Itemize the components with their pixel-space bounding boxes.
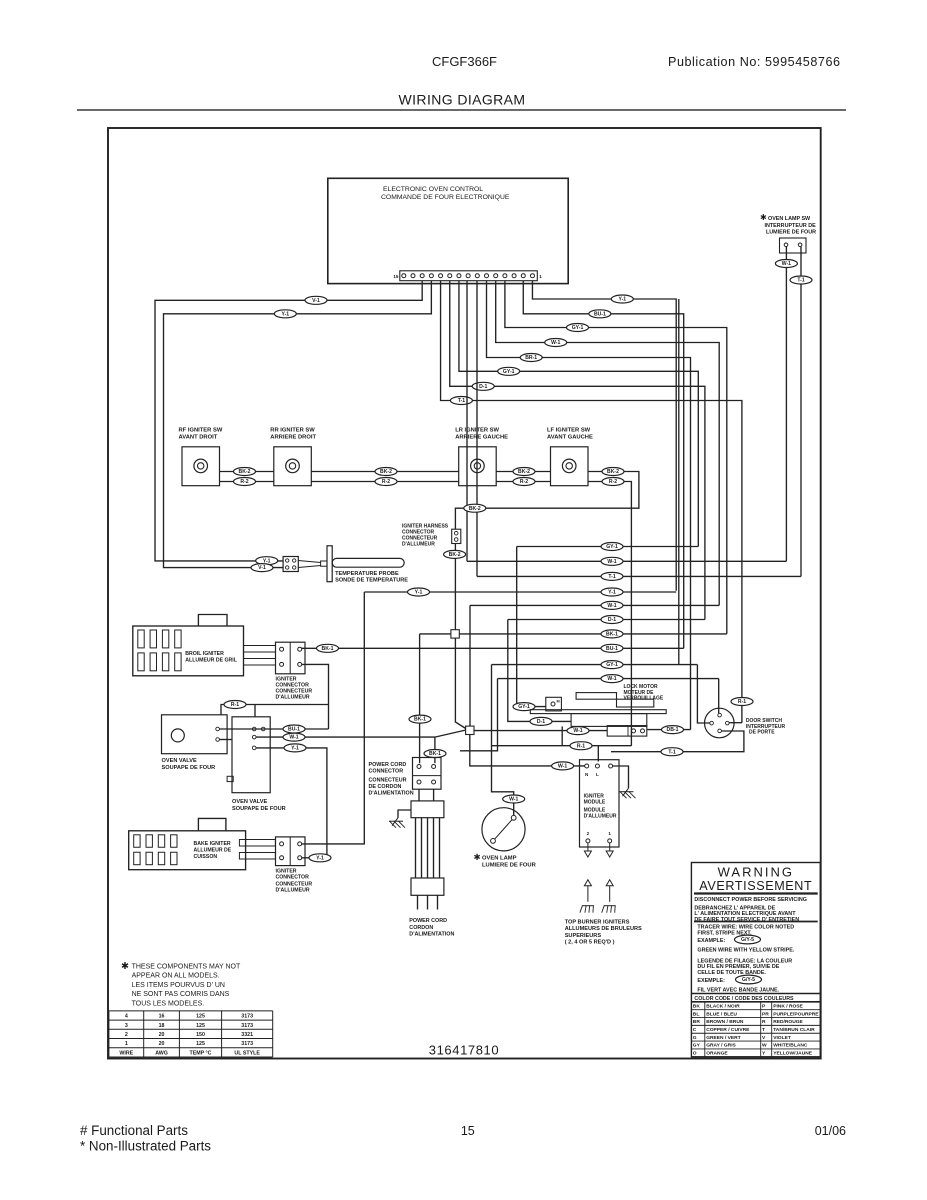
svg-text:18: 18	[159, 1023, 165, 1029]
svg-text:T: T	[762, 1027, 765, 1033]
svg-text:G/Y-5: G/Y-5	[742, 977, 755, 983]
svg-text:INTERRUPTEUR DE: INTERRUPTEUR DE	[765, 223, 817, 229]
svg-text:BU-1: BU-1	[606, 646, 618, 652]
svg-text:LUMIERE DE FOUR: LUMIERE DE FOUR	[482, 863, 537, 869]
svg-text:WARNING: WARNING	[718, 865, 794, 880]
svg-text:ORANGE: ORANGE	[706, 1051, 728, 1057]
svg-text:W-1: W-1	[782, 261, 791, 267]
svg-text:R-2: R-2	[382, 479, 390, 485]
svg-text:AWG: AWG	[155, 1050, 168, 1056]
svg-text:3173: 3173	[241, 1014, 253, 1020]
svg-text:ALLUMEUR DE: ALLUMEUR DE	[194, 848, 232, 854]
svg-text:GY: GY	[693, 1043, 701, 1049]
svg-text:G/Y-5: G/Y-5	[741, 937, 754, 943]
svg-text:COPPER / CUIVRE: COPPER / CUIVRE	[706, 1027, 750, 1033]
svg-text:LR IGNITER SW: LR IGNITER SW	[455, 428, 499, 434]
svg-text:T-1: T-1	[458, 398, 466, 404]
svg-text:SONDE DE TEMPERATURE: SONDE DE TEMPERATURE	[335, 578, 408, 584]
svg-text:4: 4	[125, 1014, 128, 1020]
svg-text:OVEN LAMP: OVEN LAMP	[482, 856, 517, 862]
svg-text:M: M	[557, 700, 560, 704]
svg-text:Y-1: Y-1	[316, 855, 324, 861]
svg-text:2: 2	[125, 1032, 128, 1038]
svg-text:C: C	[693, 1027, 697, 1033]
svg-text:2: 2	[587, 831, 590, 836]
svg-text:150: 150	[196, 1032, 205, 1038]
svg-text:WHITE/BLANC: WHITE/BLANC	[773, 1043, 808, 1049]
svg-text:L: L	[596, 772, 599, 777]
svg-text:125: 125	[196, 1023, 205, 1029]
svg-text:T-1: T-1	[797, 278, 805, 284]
svg-text:GY-1: GY-1	[518, 704, 530, 710]
svg-text:BR: BR	[693, 1019, 701, 1025]
svg-text:AVANT DROIT: AVANT DROIT	[179, 435, 218, 441]
svg-text:( 2, 4 OR 5 REQ'D ): ( 2, 4 OR 5 REQ'D )	[565, 940, 615, 946]
svg-text:BL: BL	[693, 1011, 700, 1017]
svg-text:R-1: R-1	[577, 743, 585, 749]
svg-text:OVEN VALVE: OVEN VALVE	[232, 799, 267, 805]
svg-text:PINK / ROSE: PINK / ROSE	[773, 1003, 803, 1009]
svg-text:1: 1	[125, 1041, 128, 1047]
svg-text:R-1: R-1	[231, 702, 239, 708]
svg-text:TOUS LES MODELES.: TOUS LES MODELES.	[132, 1000, 205, 1007]
svg-text:GY-1: GY-1	[606, 662, 618, 668]
svg-text:BK-1: BK-1	[429, 751, 441, 757]
svg-text:# Functional Parts: # Functional Parts	[80, 1123, 188, 1138]
svg-text:BK-2: BK-2	[469, 506, 481, 512]
svg-text:WIRE: WIRE	[119, 1050, 133, 1056]
svg-text:D'ALLUMEUR: D'ALLUMEUR	[402, 542, 435, 548]
svg-text:T-1: T-1	[608, 574, 616, 580]
svg-text:1: 1	[608, 831, 611, 836]
svg-text:BLUE / BLEU: BLUE / BLEU	[706, 1011, 737, 1017]
svg-text:D-1: D-1	[479, 384, 487, 390]
svg-text:APPEAR ON ALL MODELS.: APPEAR ON ALL MODELS.	[132, 973, 220, 980]
svg-text:BK-1: BK-1	[414, 717, 426, 723]
svg-text:W: W	[762, 1043, 767, 1049]
svg-text:LUMIERE DE FOUR: LUMIERE DE FOUR	[766, 230, 816, 236]
svg-text:20: 20	[159, 1041, 165, 1047]
svg-text:✱: ✱	[121, 961, 129, 972]
svg-text:BAKE IGNITER: BAKE IGNITER	[194, 841, 231, 847]
svg-text:OVEN VALVE: OVEN VALVE	[162, 758, 197, 764]
svg-text:ELECTRONIC OVEN CONTROL: ELECTRONIC OVEN CONTROL	[383, 186, 483, 193]
svg-text:15: 15	[393, 274, 399, 279]
svg-text:3: 3	[125, 1023, 128, 1029]
svg-text:VIOLET: VIOLET	[773, 1035, 791, 1041]
svg-text:V-1: V-1	[312, 298, 320, 304]
svg-text:VERROUILLAGE: VERROUILLAGE	[624, 696, 664, 702]
svg-text:Y-1: Y-1	[618, 297, 626, 303]
svg-text:D'ALLUMEUR: D'ALLUMEUR	[584, 814, 617, 820]
svg-text:1: 1	[539, 274, 542, 279]
svg-text:R-1: R-1	[738, 699, 746, 705]
svg-text:TEMP °C: TEMP °C	[189, 1050, 211, 1056]
svg-text:NE SONT PAS COMRIS DANS: NE SONT PAS COMRIS DANS	[132, 991, 230, 998]
svg-text:D-1: D-1	[608, 617, 616, 623]
svg-text:W-1: W-1	[558, 764, 567, 770]
svg-text:✱: ✱	[474, 852, 481, 862]
svg-text:LES ITEMS POURVUS D' UN: LES ITEMS POURVUS D' UN	[132, 982, 225, 989]
svg-text:D'ALLUMEUR: D'ALLUMEUR	[276, 888, 310, 894]
svg-text:O: O	[693, 1051, 697, 1057]
svg-text:BU-1: BU-1	[288, 727, 300, 733]
svg-text:ALLUMEUR DE GRIL: ALLUMEUR DE GRIL	[185, 658, 237, 664]
svg-text:CELLE DE TOUTE BANDE.: CELLE DE TOUTE BANDE.	[697, 970, 766, 976]
svg-text:PR: PR	[762, 1011, 769, 1017]
svg-text:ARRIERE DROIT: ARRIERE DROIT	[270, 435, 316, 441]
svg-text:GREEN / VERT: GREEN / VERT	[706, 1035, 741, 1041]
svg-text:125: 125	[196, 1041, 205, 1047]
svg-text:* Non-Illustrated Parts: * Non-Illustrated Parts	[80, 1139, 211, 1154]
svg-text:R-2: R-2	[520, 479, 528, 485]
svg-text:UL STYLE: UL STYLE	[234, 1050, 260, 1056]
svg-text:DE PORTE: DE PORTE	[749, 730, 775, 736]
svg-text:POWER CORD: POWER CORD	[369, 762, 407, 768]
svg-text:RED/ROUGE: RED/ROUGE	[773, 1019, 803, 1025]
svg-text:PURPLE/POURPRE: PURPLE/POURPRE	[773, 1011, 819, 1017]
svg-text:Y-1: Y-1	[608, 590, 616, 596]
svg-text:Y-1: Y-1	[291, 746, 299, 752]
svg-text:BK-2: BK-2	[239, 469, 251, 475]
svg-text:COMMANDE DE FOUR ELECTRONIQ: COMMANDE DE FOUR ELECTRONIQUE	[381, 194, 510, 201]
svg-text:D'ALIMENTATION: D'ALIMENTATION	[369, 791, 414, 797]
svg-text:V-1: V-1	[258, 565, 266, 571]
svg-text:SUPERIEURS: SUPERIEURS	[565, 933, 602, 939]
svg-text:01/06: 01/06	[815, 1124, 846, 1138]
svg-text:TEMPERATURE PROBE: TEMPERATURE PROBE	[335, 571, 399, 577]
svg-text:BROWN / BRUN: BROWN / BRUN	[706, 1019, 744, 1025]
svg-text:20: 20	[159, 1032, 165, 1038]
svg-text:CFGF366F: CFGF366F	[432, 54, 497, 69]
svg-text:D'ALIMENTATION: D'ALIMENTATION	[409, 932, 454, 938]
svg-text:316417810: 316417810	[429, 1043, 499, 1058]
svg-text:16: 16	[159, 1014, 165, 1020]
svg-text:GY-1: GY-1	[606, 544, 618, 550]
svg-text:BK-2: BK-2	[518, 469, 530, 475]
svg-text:BK-2: BK-2	[380, 469, 392, 475]
svg-text:W-1: W-1	[551, 340, 560, 346]
svg-text:SOUPAPE DE FOUR: SOUPAPE DE FOUR	[232, 806, 286, 812]
svg-text:R-2: R-2	[240, 479, 248, 485]
svg-text:W-1: W-1	[607, 603, 616, 609]
svg-text:15: 15	[461, 1124, 475, 1138]
svg-text:BK-1: BK-1	[322, 646, 334, 652]
svg-text:T-1: T-1	[668, 749, 676, 755]
svg-text:3173: 3173	[241, 1023, 253, 1029]
svg-text:Publication No: 5995458766: Publication No: 5995458766	[668, 55, 841, 69]
svg-text:Y-1: Y-1	[281, 311, 289, 317]
svg-text:Y: Y	[762, 1051, 766, 1057]
svg-text:BU-1: BU-1	[594, 311, 606, 317]
svg-text:FIL VERT AVEC BANDE JAUNE.: FIL VERT AVEC BANDE JAUNE.	[697, 987, 779, 993]
svg-text:D-1: D-1	[537, 719, 545, 725]
svg-text:ALLUMEURS DE BRULEURS: ALLUMEURS DE BRULEURS	[565, 926, 642, 932]
svg-text:N: N	[585, 772, 589, 777]
svg-text:MODULE: MODULE	[584, 800, 606, 806]
svg-text:GRAY / GRIS: GRAY / GRIS	[706, 1043, 736, 1049]
svg-text:R-2: R-2	[609, 479, 617, 485]
svg-text:BK-2: BK-2	[607, 469, 619, 475]
svg-text:OVEN LAMP SW: OVEN LAMP SW	[768, 216, 811, 222]
svg-text:3321: 3321	[241, 1032, 253, 1038]
svg-text:V: V	[762, 1035, 766, 1041]
svg-text:CORDON: CORDON	[409, 925, 433, 931]
svg-text:YELLOW/JAUNE: YELLOW/JAUNE	[773, 1051, 813, 1057]
svg-text:GREEN WIRE WITH YELLOW STR: GREEN WIRE WITH YELLOW STRIPE.	[697, 947, 794, 953]
svg-text:CONNECTOR: CONNECTOR	[276, 875, 310, 881]
svg-text:✱: ✱	[760, 213, 767, 222]
svg-text:3173: 3173	[241, 1041, 253, 1047]
svg-text:TAN/BRUN CLAIR: TAN/BRUN CLAIR	[773, 1027, 815, 1033]
svg-text:RR IGNITER SW: RR IGNITER SW	[270, 428, 315, 434]
svg-text:DISCONNECT POWER BEFORE SERVIC: DISCONNECT POWER BEFORE SERVICING	[694, 897, 807, 903]
svg-text:P: P	[762, 1003, 766, 1009]
svg-text:WIRING DIAGRAM: WIRING DIAGRAM	[399, 92, 526, 108]
svg-text:TOP BURNER IGNITERS: TOP BURNER IGNITERS	[565, 920, 630, 926]
svg-text:BK: BK	[693, 1003, 701, 1009]
svg-text:EXAMPLE:: EXAMPLE:	[697, 938, 725, 944]
svg-text:W-1: W-1	[573, 728, 582, 734]
svg-text:THESE COMPONENTS MAY NOT: THESE COMPONENTS MAY NOT	[132, 964, 241, 971]
svg-text:BK-2: BK-2	[449, 552, 461, 558]
svg-text:ARRIERE GAUCHE: ARRIERE GAUCHE	[455, 435, 508, 441]
svg-text:DE CORDON: DE CORDON	[369, 784, 402, 790]
svg-text:AVANT GAUCHE: AVANT GAUCHE	[547, 435, 593, 441]
svg-text:GY-1: GY-1	[503, 369, 515, 375]
svg-text:LF IGNITER SW: LF IGNITER SW	[547, 428, 591, 434]
svg-text:EXEMPLE:: EXEMPLE:	[697, 978, 725, 984]
svg-text:CUISSON: CUISSON	[194, 854, 218, 860]
svg-text:Y-1: Y-1	[415, 590, 423, 596]
svg-text:RF IGNITER SW: RF IGNITER SW	[179, 428, 223, 434]
svg-text:CONNECTEUR: CONNECTEUR	[369, 778, 407, 784]
svg-text:BR-1: BR-1	[525, 355, 537, 361]
svg-text:G: G	[693, 1035, 697, 1041]
svg-text:W-1: W-1	[607, 559, 616, 565]
svg-text:R: R	[762, 1019, 766, 1025]
svg-text:W-1: W-1	[289, 735, 298, 741]
svg-text:SOUPAPE DE FOUR: SOUPAPE DE FOUR	[162, 765, 216, 771]
svg-text:CONNECTOR: CONNECTOR	[369, 769, 404, 775]
svg-text:BK-1: BK-1	[606, 632, 618, 638]
svg-text:POWER CORD: POWER CORD	[409, 918, 447, 924]
svg-text:BLACK / NOIR: BLACK / NOIR	[706, 1003, 740, 1009]
svg-text:D'ALLUMEUR: D'ALLUMEUR	[276, 695, 310, 701]
svg-text:DB-1: DB-1	[667, 727, 679, 733]
svg-text:AVERTISSEMENT: AVERTISSEMENT	[699, 879, 812, 893]
svg-text:W-1: W-1	[509, 797, 518, 803]
svg-text:125: 125	[196, 1014, 205, 1020]
svg-text:GY-1: GY-1	[572, 325, 584, 331]
svg-text:BROIL IGNITER: BROIL IGNITER	[185, 651, 224, 657]
svg-text:W-1: W-1	[607, 676, 616, 682]
